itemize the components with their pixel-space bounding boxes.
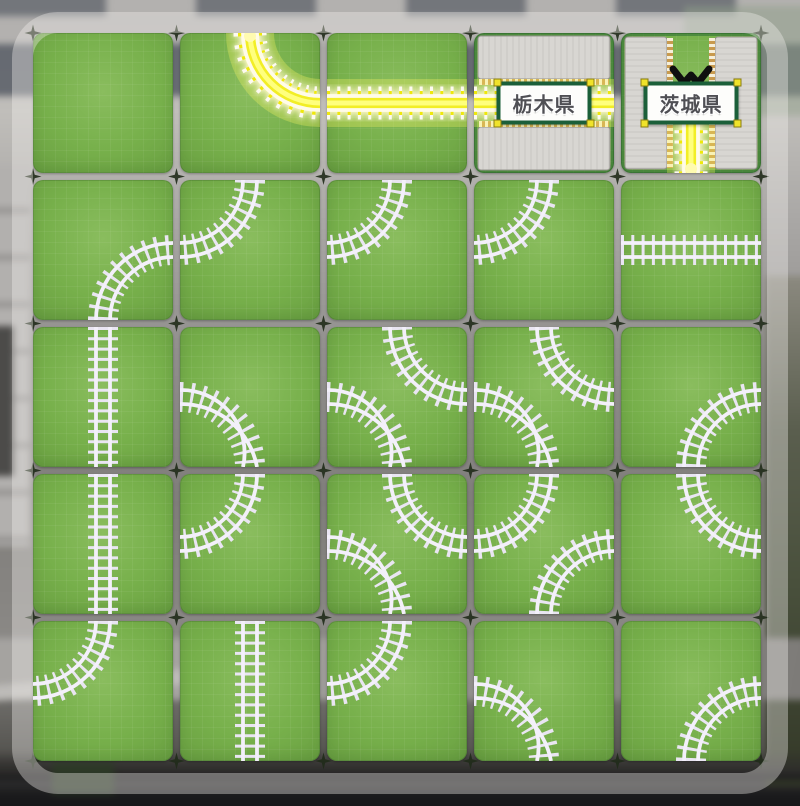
tile-r4c2[interactable] — [180, 474, 320, 614]
game-screen: 栃木県 茨城県 — [0, 0, 800, 806]
station-label-tochigi[interactable]: 栃木県 — [497, 82, 592, 125]
tile-r5c2[interactable] — [180, 621, 320, 761]
tile-r1c2[interactable] — [180, 33, 320, 173]
station-label-ibaraki[interactable]: 茨城県 — [644, 82, 739, 125]
track-double-tr-bl — [474, 327, 614, 467]
label-corner-handle — [587, 120, 595, 128]
track-curve-bl — [474, 621, 614, 761]
tile-r3c1[interactable] — [33, 327, 173, 467]
game-board: 栃木県 茨城県 — [33, 33, 761, 761]
tile-r2c4[interactable] — [474, 180, 614, 320]
track-curve-tr-highlighted — [180, 33, 320, 173]
track-curve-tl — [474, 180, 614, 320]
label-corner-handle — [587, 79, 595, 87]
tile-r3c5[interactable] — [621, 327, 761, 467]
tile-r1c1[interactable] — [33, 33, 173, 173]
tile-r1c5[interactable]: 茨城県 — [621, 33, 761, 173]
tile-r4c5[interactable] — [621, 474, 761, 614]
track-straight-h — [621, 180, 761, 320]
tile-r4c3[interactable] — [327, 474, 467, 614]
label-corner-handle — [734, 120, 742, 128]
label-corner-handle — [734, 79, 742, 87]
empty-grass — [33, 33, 173, 173]
track-curve-br — [33, 180, 173, 320]
track-straight-v — [33, 327, 173, 467]
track-curve-br — [621, 327, 761, 467]
track-double-tr-bl — [327, 327, 467, 467]
tile-r3c2[interactable] — [180, 327, 320, 467]
tile-r5c4[interactable] — [474, 621, 614, 761]
track-double-tl-br — [474, 474, 614, 614]
track-curve-tr — [621, 474, 761, 614]
tile-r5c1[interactable] — [33, 621, 173, 761]
track-straight-v — [180, 621, 320, 761]
track-curve-bl — [180, 327, 320, 467]
tile-r3c4[interactable] — [474, 327, 614, 467]
label-corner-handle — [641, 79, 649, 87]
track-straight-h-highlighted — [327, 33, 467, 173]
tile-r3c3[interactable] — [327, 327, 467, 467]
track-curve-tl — [327, 180, 467, 320]
tile-r2c5[interactable] — [621, 180, 761, 320]
station-label-text: 栃木県 — [513, 93, 576, 117]
tile-r1c3[interactable] — [327, 33, 467, 173]
station-label-text: 茨城県 — [660, 93, 723, 117]
tile-r2c2[interactable] — [180, 180, 320, 320]
tile-r5c3[interactable] — [327, 621, 467, 761]
label-corner-handle — [641, 120, 649, 128]
tile-r2c3[interactable] — [327, 180, 467, 320]
track-curve-tl — [33, 621, 173, 761]
track-curve-br — [621, 621, 761, 761]
track-double-tr-bl — [327, 474, 467, 614]
label-corner-handle — [494, 120, 502, 128]
track-straight-v — [33, 474, 173, 614]
tile-r4c1[interactable] — [33, 474, 173, 614]
label-corner-handle — [494, 79, 502, 87]
tile-r2c1[interactable] — [33, 180, 173, 320]
tile-r1c4[interactable]: 栃木県 — [474, 33, 614, 173]
track-curve-tl — [180, 180, 320, 320]
tile-r5c5[interactable] — [621, 621, 761, 761]
track-curve-tl — [327, 621, 467, 761]
track-curve-tl — [180, 474, 320, 614]
tile-r4c4[interactable] — [474, 474, 614, 614]
